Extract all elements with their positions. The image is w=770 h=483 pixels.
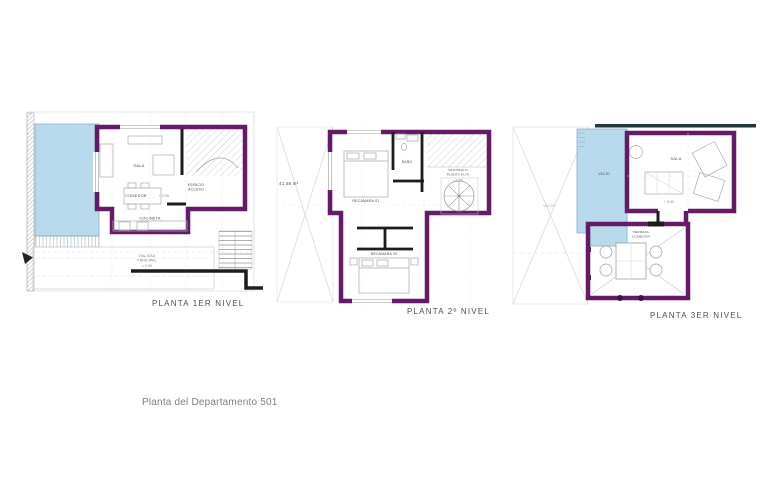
label-vacio-blue: VACÍO	[598, 172, 610, 176]
plan2-area-label: 41.48 m²	[279, 181, 299, 186]
label-vestibulo-level: + 2.80	[453, 178, 463, 182]
plan2-furniture	[344, 134, 418, 293]
sheet-caption: Planta del Departamento 501	[142, 397, 278, 408]
plan1-title: PLANTA 1ER NIVEL	[152, 299, 244, 308]
plan3-wall-pier-a	[586, 247, 591, 252]
plan2-window-gap-bottom	[352, 297, 392, 305]
plan1-pool-area	[35, 124, 99, 236]
plan1-access-stair-hatch	[187, 130, 243, 176]
plan2-room-labels: RECÁMARA 01 BAÑO VESTÍBULO PLANTA ALTA +…	[352, 159, 469, 256]
label-terraza-1: TERRAZA	[633, 230, 650, 234]
plan1-interior-walls	[167, 129, 186, 204]
plan1-window-gap-top	[120, 123, 160, 131]
label-vestibulo-1: VESTÍBULO	[448, 168, 468, 172]
label-vacio-side: VACÍO	[543, 204, 555, 208]
label-comedor: COMEDOR	[125, 194, 147, 198]
label-cocineta: COCINETA	[139, 217, 161, 221]
label-sala-1: SALA	[133, 163, 144, 168]
plan-2-drawing: 41.48 m²	[277, 125, 490, 308]
plan-3-drawing: VACÍO VACÍO SALA + 5.60	[513, 124, 756, 304]
plan2-void-diagonals	[277, 127, 333, 302]
label-comedor-level: + 0.05	[159, 194, 169, 198]
label-sala-level: + 5.60	[664, 200, 674, 204]
plan3-terraza-furniture	[600, 243, 662, 279]
label-recamara-02: RECÁMARA 02	[371, 252, 398, 256]
plan2-window-gap-top	[347, 128, 381, 136]
plan2-title: PLANTA 2º NIVEL	[407, 307, 490, 316]
label-vialidad-2: PRINCIPAL	[137, 259, 156, 263]
label-bano: BAÑO	[402, 159, 413, 164]
plan3-top-parapet	[595, 124, 756, 128]
plan3-column-dot-b	[638, 295, 644, 301]
label-terraza-2: COMEDOR	[632, 235, 650, 239]
floor-plans-drawing: SALA COMEDOR + 0.05 COCINETA ESPACIO ACC…	[0, 0, 770, 483]
plan1-driveway-outline	[33, 247, 214, 289]
plan3-wall-pier-b	[586, 275, 591, 280]
plan2-spiral-stair	[441, 178, 478, 214]
plan2-stair-hatch	[427, 134, 487, 167]
plan3-sala-furniture	[630, 141, 728, 201]
label-acceso-1: ESPACIO	[188, 183, 205, 187]
plan1-pool-deck	[35, 236, 99, 247]
label-recamara-01: RECÁMARA 01	[352, 199, 379, 203]
plan1-driveway-lines	[36, 258, 212, 276]
label-sala-3: SALA	[670, 156, 681, 161]
floor-plan-sheet: SALA COMEDOR + 0.05 COCINETA ESPACIO ACC…	[0, 0, 770, 483]
label-vestibulo-2: PLANTA ALTA	[447, 173, 470, 177]
plan3-title: PLANTA 3ER NIVEL	[650, 311, 742, 320]
plan2-interior-walls	[357, 132, 424, 249]
plan1-stepped-wall	[131, 271, 263, 288]
plan2-window-gap-left	[326, 152, 334, 190]
plan-1-drawing: SALA COMEDOR + 0.05 COCINETA ESPACIO ACC…	[22, 112, 263, 291]
plan1-stair-run	[219, 231, 252, 269]
label-acceso-2: ACCESO	[188, 188, 204, 192]
label-vialidad-level: ± 0.00	[142, 264, 152, 268]
label-vialidad-1: VIALIDAD	[138, 254, 155, 258]
plan3-column-dot-a	[617, 295, 623, 301]
